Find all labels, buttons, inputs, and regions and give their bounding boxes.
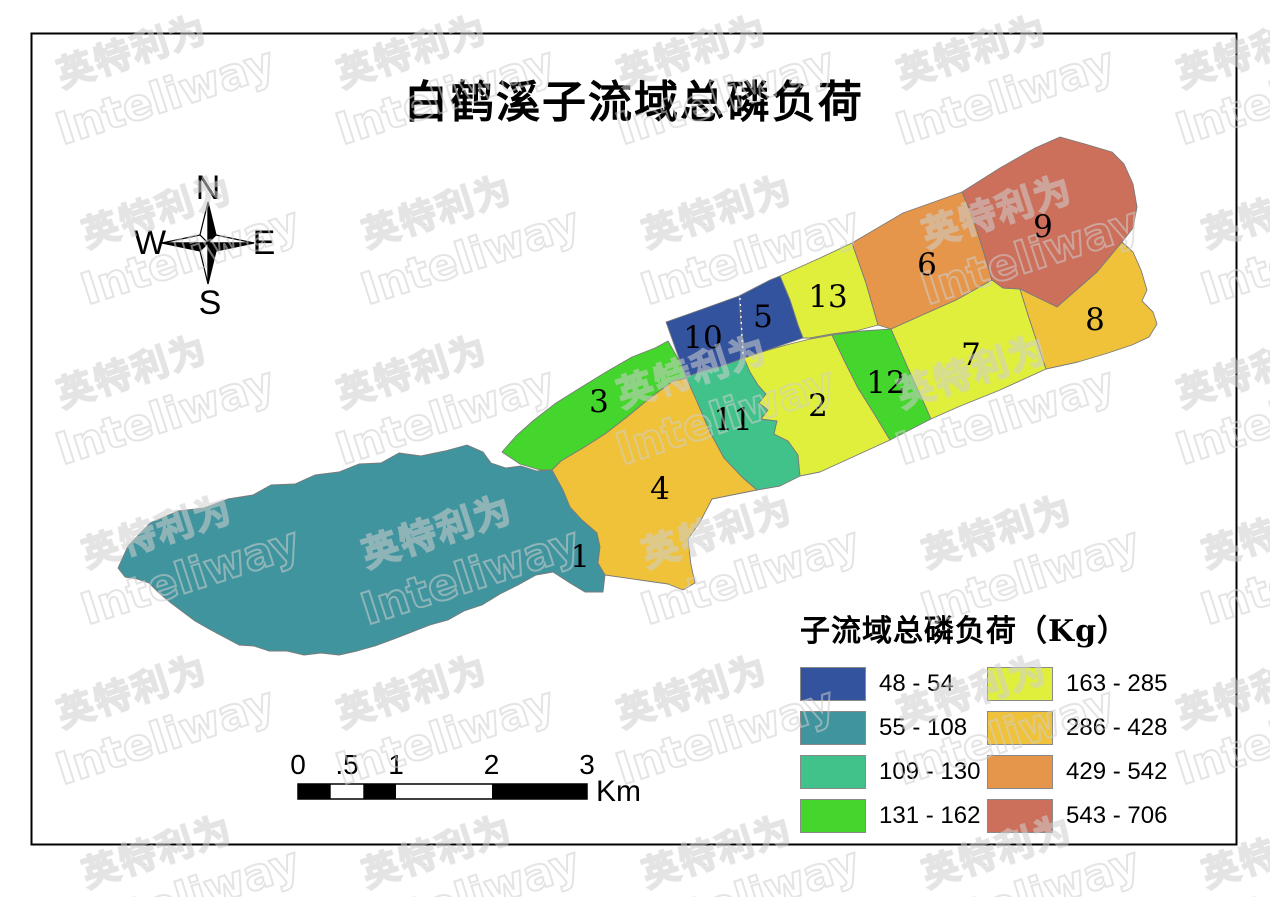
region-4-label: 4 — [650, 471, 670, 507]
region-5-label: 5 — [753, 299, 773, 335]
scale-tick-3: 3 — [579, 749, 595, 780]
compass-arm-w-white — [162, 235, 208, 243]
scale-tick-2: 2 — [484, 749, 500, 780]
scale-bar-segment — [298, 784, 331, 799]
region-2-label: 2 — [808, 388, 828, 424]
scale-tick-1: 1 — [388, 749, 404, 780]
legend-item: 55 - 108 — [800, 712, 987, 744]
legend-item: 543 - 706 — [987, 800, 1187, 832]
region-11-label: 11 — [713, 402, 752, 438]
page-title: 白鹤溪子流域总磷负荷 — [31, 66, 1237, 130]
legend-swatch — [987, 667, 1053, 701]
map-figure: 1 2 3 4 5 6 7 8 9 10 11 12 13 — [0, 0, 1270, 897]
scale-bar-segment — [363, 784, 396, 799]
legend-range-label: 131 - 162 — [879, 802, 980, 830]
region-9-label: 9 — [1033, 209, 1053, 245]
legend-title: 子流域总磷负荷（Kg） — [800, 606, 1210, 650]
scale-bar: 0 .5 1 2 3 Km — [290, 749, 641, 808]
legend-range-label: 286 - 428 — [1066, 714, 1167, 742]
legend-range-label: 429 - 542 — [1066, 758, 1167, 786]
region-8-label: 8 — [1085, 302, 1105, 338]
region-1 — [118, 445, 605, 655]
legend-column-left: 48 - 54 55 - 108 109 - 130 131 - 162 — [800, 668, 987, 844]
scale-unit-label: Km — [596, 775, 641, 808]
legend-swatch — [800, 667, 866, 701]
compass-s-label: S — [199, 284, 222, 322]
region-7-label: 7 — [961, 337, 981, 373]
compass-arm-s-black — [208, 243, 216, 284]
region-1-label: 1 — [570, 539, 590, 575]
compass-arm-w-black — [162, 243, 208, 251]
compass-n-label: N — [196, 169, 221, 207]
subwatershed-polygons — [118, 137, 1157, 655]
compass-e-label: E — [253, 224, 276, 262]
region-3-label: 3 — [589, 384, 609, 420]
legend-swatch — [800, 755, 866, 789]
legend: 子流域总磷负荷（Kg） 48 - 54 55 - 108 109 - 130 1… — [790, 600, 1210, 844]
legend-column-right: 163 - 285 286 - 428 429 - 542 543 - 706 — [987, 668, 1187, 844]
legend-item: 429 - 542 — [987, 756, 1187, 788]
legend-item: 163 - 285 — [987, 668, 1187, 700]
legend-swatch — [987, 711, 1053, 745]
compass-w-label: W — [134, 224, 166, 262]
compass-rose: N S E W — [134, 169, 275, 322]
legend-range-label: 109 - 130 — [879, 758, 980, 786]
region-12-label: 12 — [866, 365, 905, 401]
scale-tick-05: .5 — [335, 749, 358, 780]
legend-swatch — [987, 755, 1053, 789]
scale-bar-segment — [492, 784, 587, 799]
legend-range-label: 543 - 706 — [1066, 802, 1167, 830]
region-6-label: 6 — [917, 247, 937, 283]
legend-range-label: 163 - 285 — [1066, 670, 1167, 698]
scale-tick-0: 0 — [290, 749, 306, 780]
legend-item: 109 - 130 — [800, 756, 987, 788]
legend-swatch — [987, 799, 1053, 833]
region-13-label: 13 — [808, 279, 847, 315]
legend-item: 286 - 428 — [987, 712, 1187, 744]
region-10-label: 10 — [683, 320, 722, 356]
legend-range-label: 48 - 54 — [879, 670, 954, 698]
legend-swatch — [800, 799, 866, 833]
legend-item: 131 - 162 — [800, 800, 987, 832]
compass-arm-e-white — [208, 235, 254, 243]
legend-swatch — [800, 711, 866, 745]
legend-range-label: 55 - 108 — [879, 714, 967, 742]
legend-item: 48 - 54 — [800, 668, 987, 700]
